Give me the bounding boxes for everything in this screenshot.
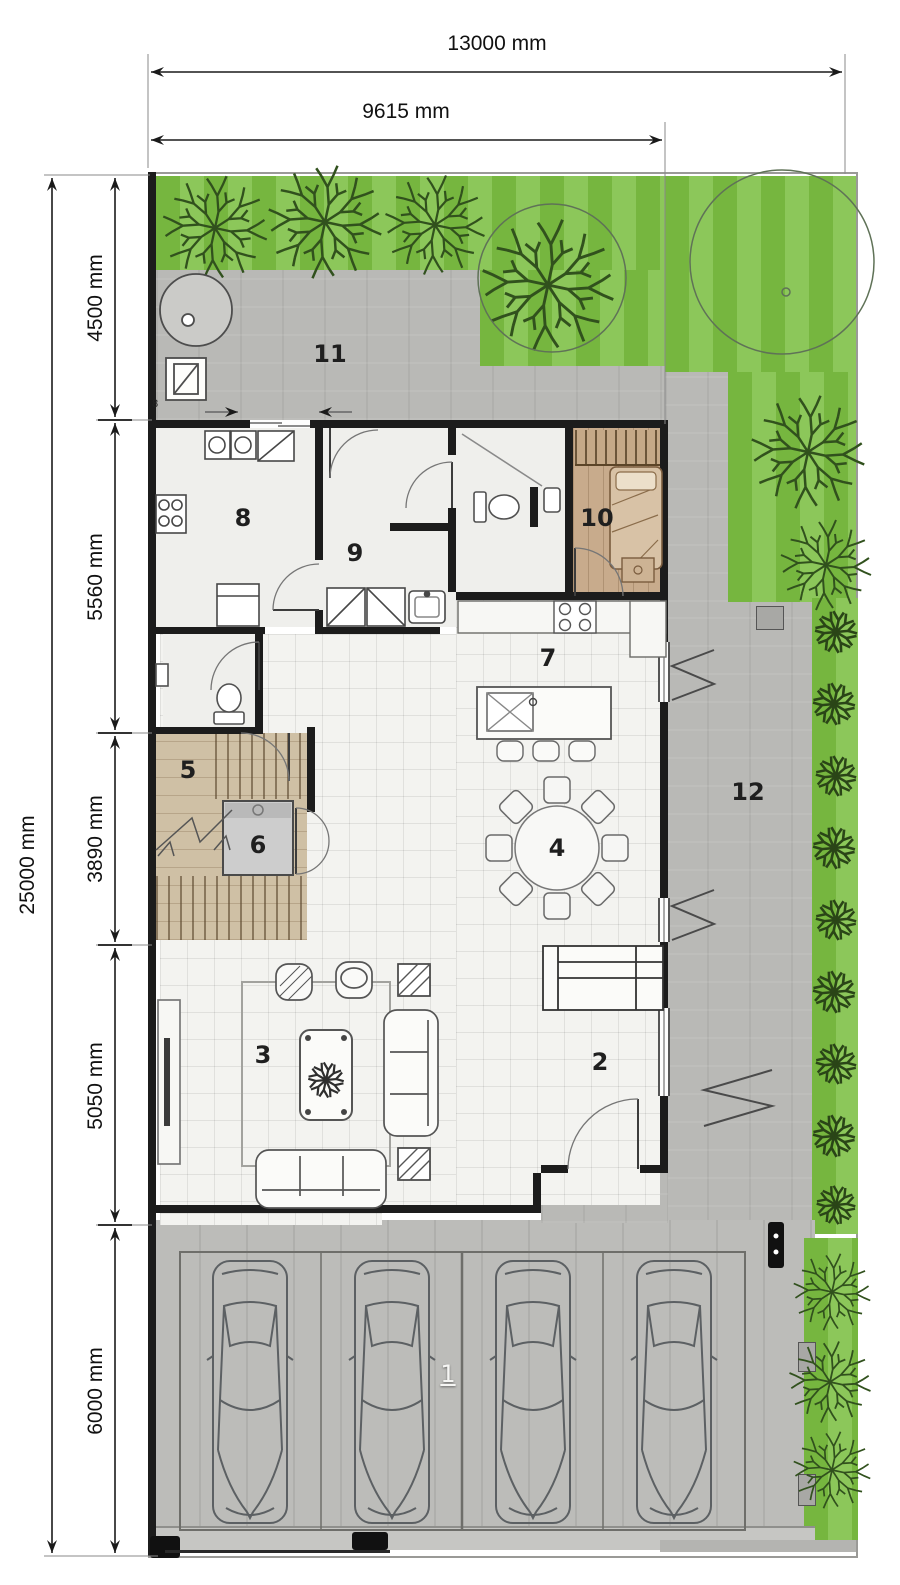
- room-label-6: 6: [250, 831, 267, 859]
- floor-wc: [163, 634, 255, 727]
- site-boundary-top: [148, 172, 858, 174]
- stair-treads-lower: [156, 876, 306, 940]
- wall-step: [533, 1173, 541, 1213]
- utility-box-1: [798, 1342, 816, 1372]
- lawn-right-lower: [728, 372, 856, 602]
- utility-box-2: [798, 1474, 816, 1506]
- wall-9-bath-a: [448, 428, 456, 455]
- path-top-right: [665, 372, 728, 602]
- floor-plan: 13000 mm 9615 mm 25000 mm 4500 mm 5560 m…: [0, 0, 900, 1585]
- dim-seg-5050: 5050 mm: [84, 1042, 108, 1130]
- curb-right: [660, 1540, 856, 1552]
- stair-treads-upper: [215, 733, 303, 799]
- step-block-left: [150, 1536, 180, 1558]
- wall-house-top: [152, 420, 668, 428]
- site-boundary-bottom: [148, 1556, 858, 1558]
- wall-int-a1: [152, 627, 265, 634]
- gate-post: [768, 1222, 784, 1268]
- dim-seg-4500: 4500 mm: [84, 254, 108, 342]
- floor-kitchen-dining: [456, 600, 660, 1205]
- wall-stairs-stub: [307, 727, 315, 812]
- wall-8-9a: [315, 428, 323, 560]
- wall-9-bath-b: [448, 508, 456, 592]
- room-label-9: 9: [347, 539, 364, 567]
- lawn-top-strip: [156, 176, 665, 270]
- path-12: [665, 602, 814, 1235]
- room-label-7: 7: [540, 644, 557, 672]
- step-block-mid: [352, 1532, 388, 1550]
- dim-seg-5560: 5560 mm: [84, 533, 108, 621]
- room-label-4: 4: [549, 834, 566, 862]
- wall-kitchen-top: [456, 592, 668, 600]
- closet-post-b: [543, 994, 557, 1010]
- room-label-10: 10: [580, 504, 613, 532]
- wall-entry-bottom-right: [640, 1165, 668, 1173]
- wall-hall-partition: [390, 523, 456, 531]
- dim-seg-6000: 6000 mm: [84, 1347, 108, 1435]
- closet-post-a: [543, 946, 557, 962]
- wardrobe: [575, 430, 660, 466]
- lawn-right-upper: [665, 176, 856, 372]
- wall-wc-bottom: [152, 727, 263, 734]
- wall-bath-bed: [565, 420, 573, 592]
- wall-living-bottom: [152, 1205, 541, 1213]
- wall-tag-8: 8: [152, 398, 158, 410]
- dim-seg-3890: 3890 mm: [84, 795, 108, 883]
- step-line: [165, 1550, 390, 1553]
- window-kitchen: [658, 642, 670, 702]
- lawn-top-mid: [480, 270, 665, 366]
- wall-int-a2: [315, 627, 440, 634]
- window-entry: [658, 1008, 670, 1096]
- room-label-8: 8: [235, 504, 252, 532]
- porch: [160, 1213, 382, 1225]
- wall-8-9b: [315, 610, 323, 627]
- room-label-2: 2: [592, 1048, 609, 1076]
- elevator-machine: [225, 803, 291, 818]
- room-label-11: 11: [313, 340, 346, 368]
- driveway-1: [152, 1220, 815, 1545]
- sliding-door: [250, 420, 310, 428]
- dim-width-partial: 9615 mm: [362, 100, 450, 124]
- room-label-1: 1: [440, 1360, 455, 1388]
- room-label-12: 12: [731, 778, 764, 806]
- wall-left-boundary: [148, 172, 156, 1556]
- shrub-strip: [812, 598, 858, 1234]
- dim-width-total: 13000 mm: [447, 32, 546, 56]
- room-label-3: 3: [255, 1041, 272, 1069]
- window-dining: [658, 898, 670, 942]
- ac-unit: [756, 606, 784, 630]
- wall-bath-stub: [530, 487, 538, 527]
- wall-entry-bottom-left: [541, 1165, 568, 1173]
- dim-depth-total: 25000 mm: [16, 815, 40, 914]
- wall-wc-right: [255, 627, 263, 733]
- room-label-5: 5: [180, 756, 197, 784]
